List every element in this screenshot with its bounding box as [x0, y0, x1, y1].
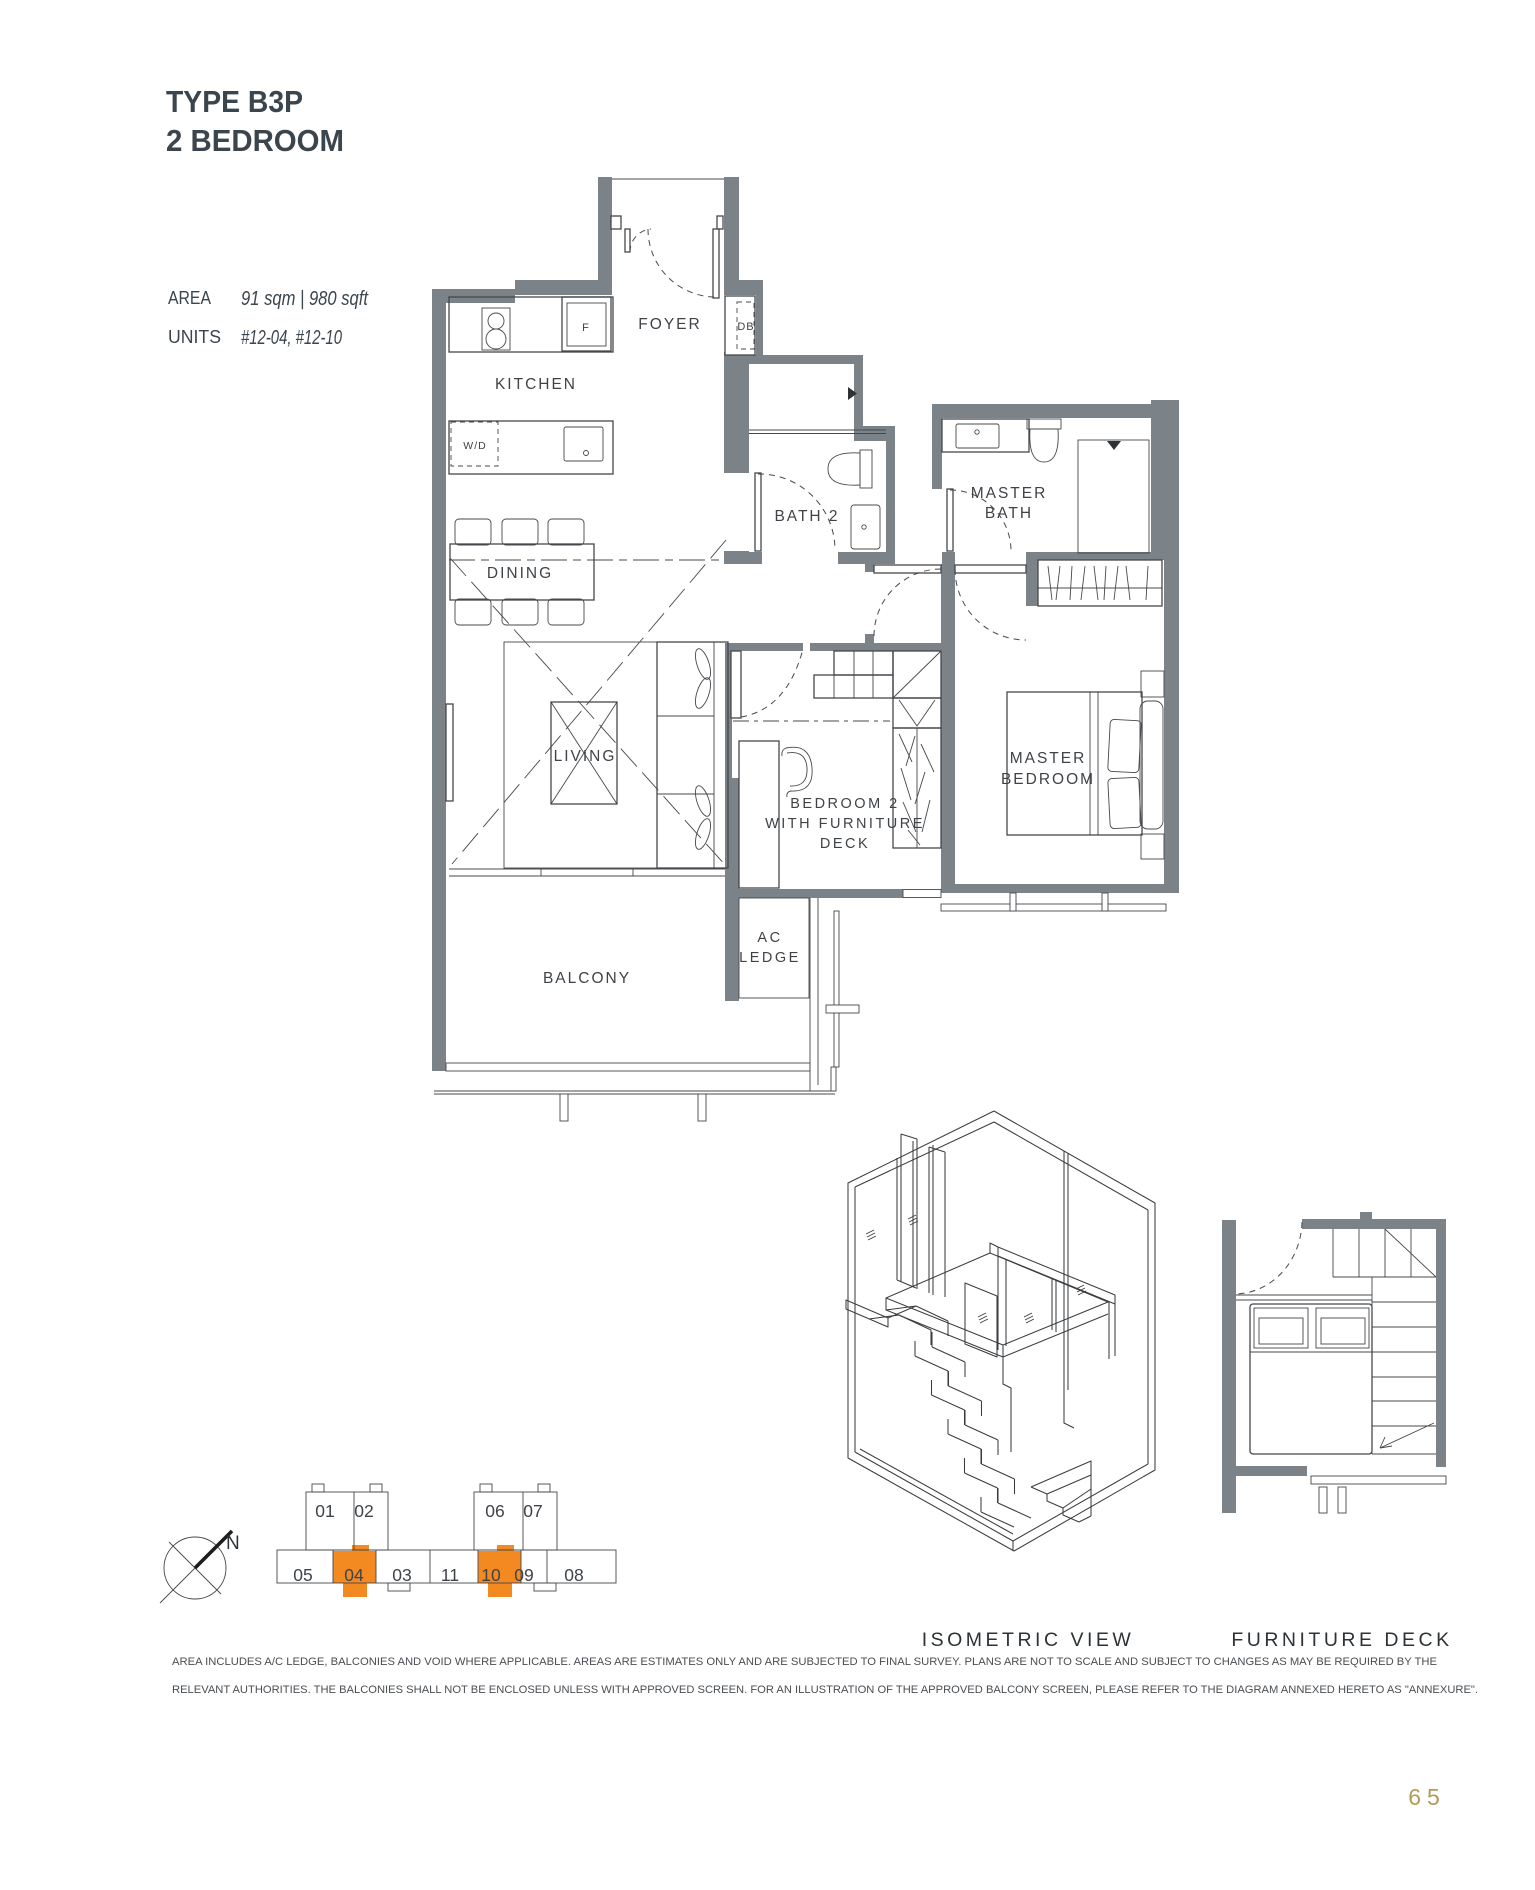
svg-text:09: 09 [514, 1565, 533, 1585]
svg-text:UNITS: UNITS [168, 327, 221, 347]
svg-text:BALCONY: BALCONY [543, 970, 631, 987]
svg-text:N: N [226, 1533, 240, 1554]
svg-text:DINING: DINING [487, 565, 553, 582]
svg-text:AREA INCLUDES A/C LEDGE, BALCO: AREA INCLUDES A/C LEDGE, BALCONIES AND V… [172, 1656, 1437, 1668]
svg-text:BEDROOM: BEDROOM [1001, 771, 1095, 788]
svg-text:LIVING: LIVING [554, 748, 617, 765]
svg-text:06: 06 [485, 1501, 504, 1521]
svg-text:MASTER: MASTER [1010, 750, 1087, 767]
svg-text:KITCHEN: KITCHEN [495, 376, 577, 393]
svg-text:01: 01 [315, 1501, 334, 1521]
svg-text:FOYER: FOYER [638, 316, 701, 333]
svg-text:W/D: W/D [463, 440, 486, 452]
svg-text:RELEVANT AUTHORITIES. THE BALC: RELEVANT AUTHORITIES. THE BALCONIES SHAL… [172, 1684, 1478, 1696]
svg-text:2 BEDROOM: 2 BEDROOM [166, 123, 344, 158]
svg-text:08: 08 [564, 1565, 583, 1585]
svg-text:F: F [582, 322, 590, 334]
svg-text:03: 03 [392, 1565, 411, 1585]
svg-text:TYPE B3P: TYPE B3P [166, 84, 303, 119]
svg-text:DECK: DECK [820, 836, 870, 852]
svg-text:07: 07 [523, 1501, 542, 1521]
svg-text:ISOMETRIC VIEW: ISOMETRIC VIEW [922, 1629, 1135, 1651]
svg-text:AREA: AREA [168, 288, 211, 308]
svg-text:MASTER: MASTER [971, 485, 1048, 502]
svg-text:AC: AC [757, 930, 782, 946]
svg-text:BEDROOM 2: BEDROOM 2 [790, 796, 900, 812]
svg-text:WITH FURNITURE: WITH FURNITURE [765, 816, 925, 832]
svg-text:DB: DB [737, 321, 754, 333]
svg-text:02: 02 [354, 1501, 373, 1521]
svg-text:10: 10 [481, 1565, 501, 1585]
svg-text:11: 11 [441, 1565, 459, 1585]
svg-text:FURNITURE DECK: FURNITURE DECK [1231, 1629, 1452, 1651]
svg-text:91 sqm | 980 sqft: 91 sqm | 980 sqft [241, 288, 369, 310]
svg-text:LEDGE: LEDGE [739, 950, 801, 966]
svg-text:65: 65 [1408, 1784, 1446, 1810]
svg-text:04: 04 [344, 1565, 364, 1585]
svg-text:#12-04, #12-10: #12-04, #12-10 [241, 327, 342, 349]
svg-text:BATH 2: BATH 2 [774, 508, 839, 525]
svg-text:05: 05 [293, 1565, 312, 1585]
svg-text:BATH: BATH [985, 505, 1033, 522]
